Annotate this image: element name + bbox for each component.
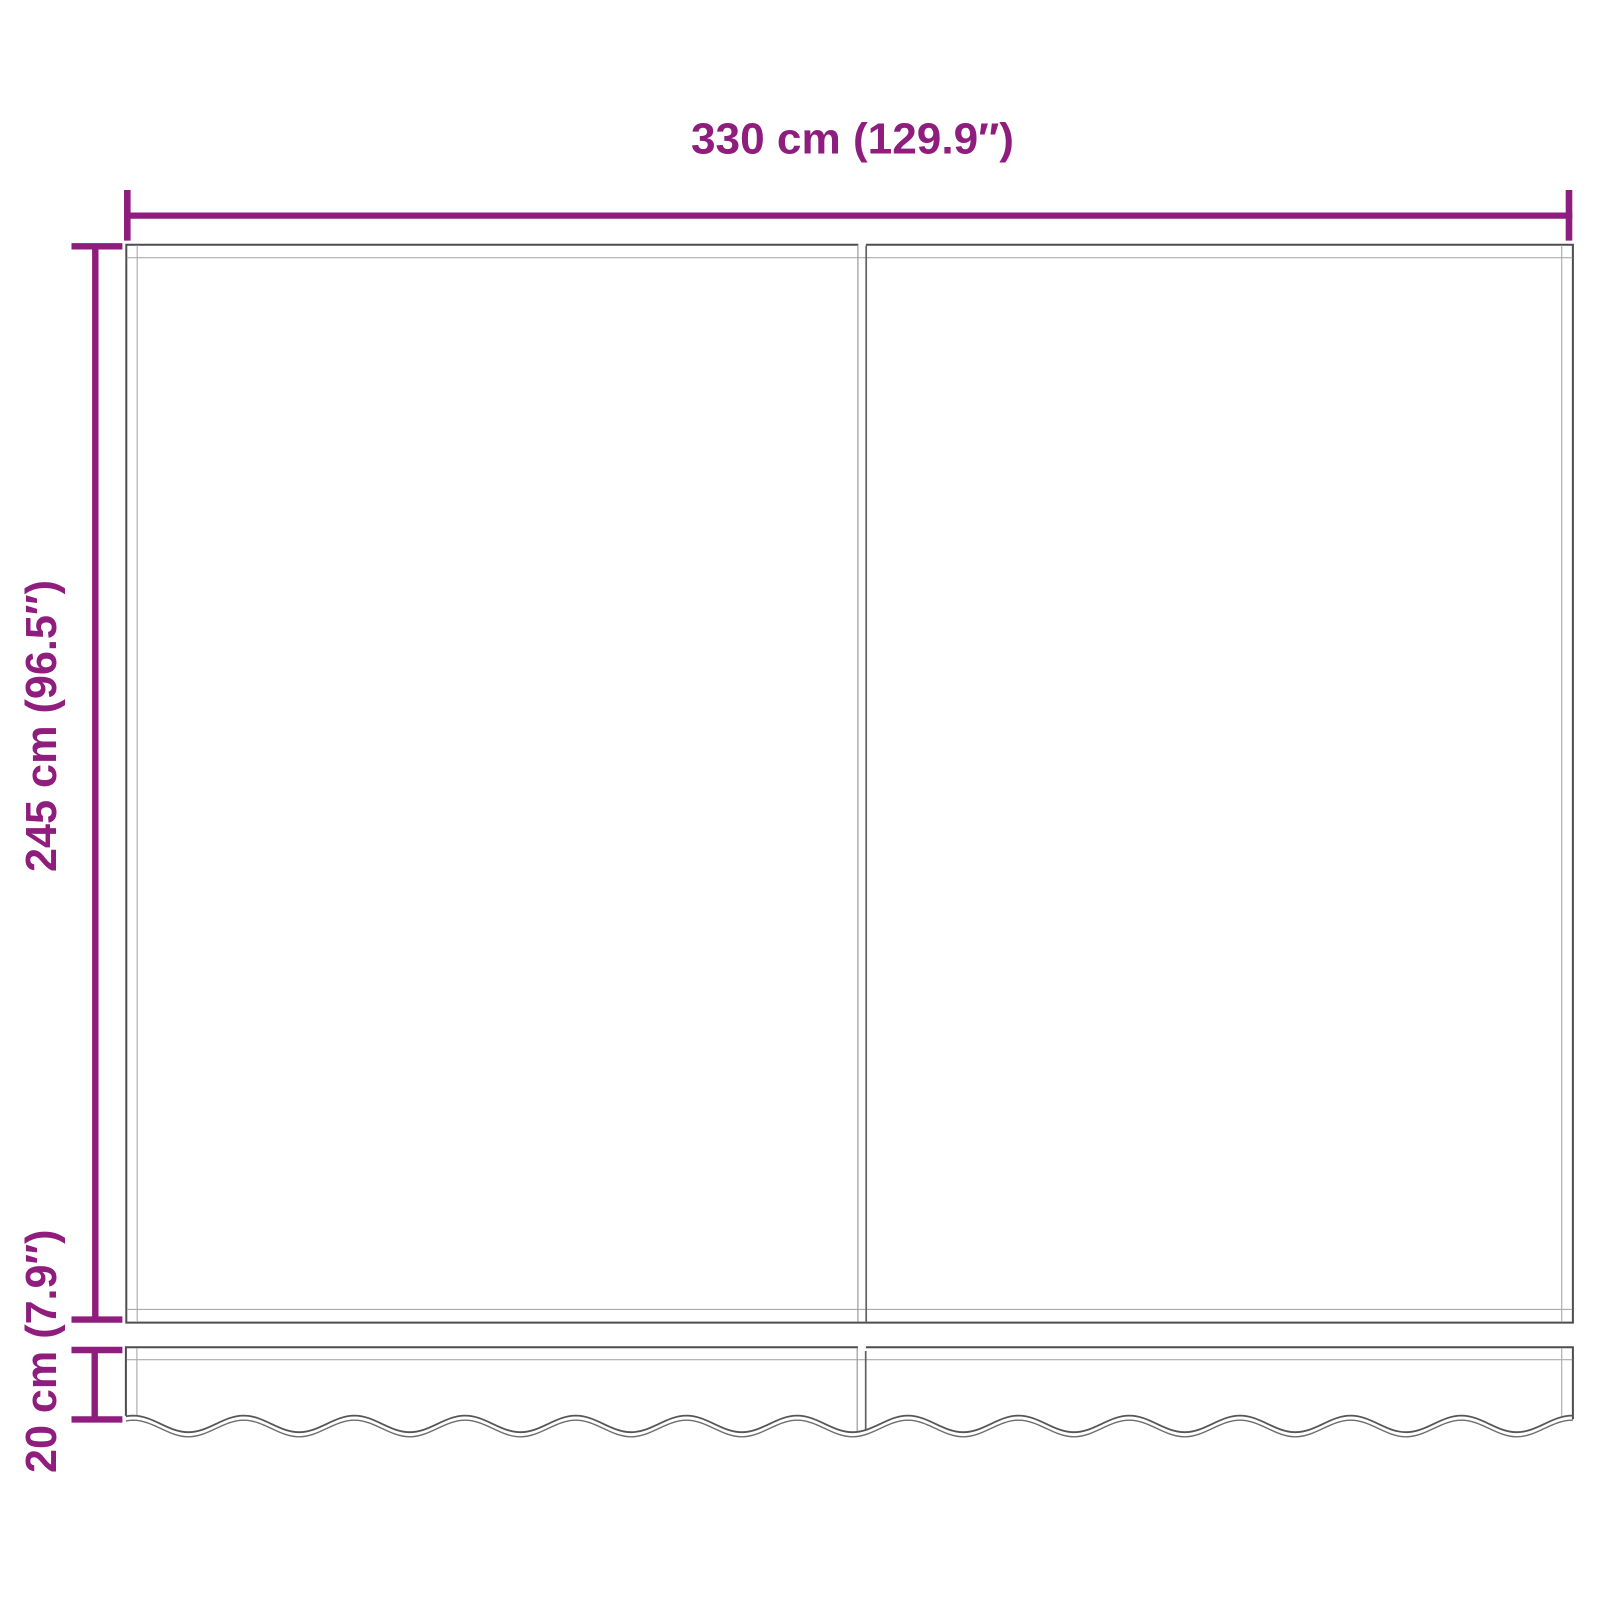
svg-text:20 cm (7.9″): 20 cm (7.9″) [17,1230,66,1474]
svg-text:330 cm (129.9″): 330 cm (129.9″) [691,115,1014,164]
svg-text:245 cm (96.5″): 245 cm (96.5″) [17,580,66,872]
